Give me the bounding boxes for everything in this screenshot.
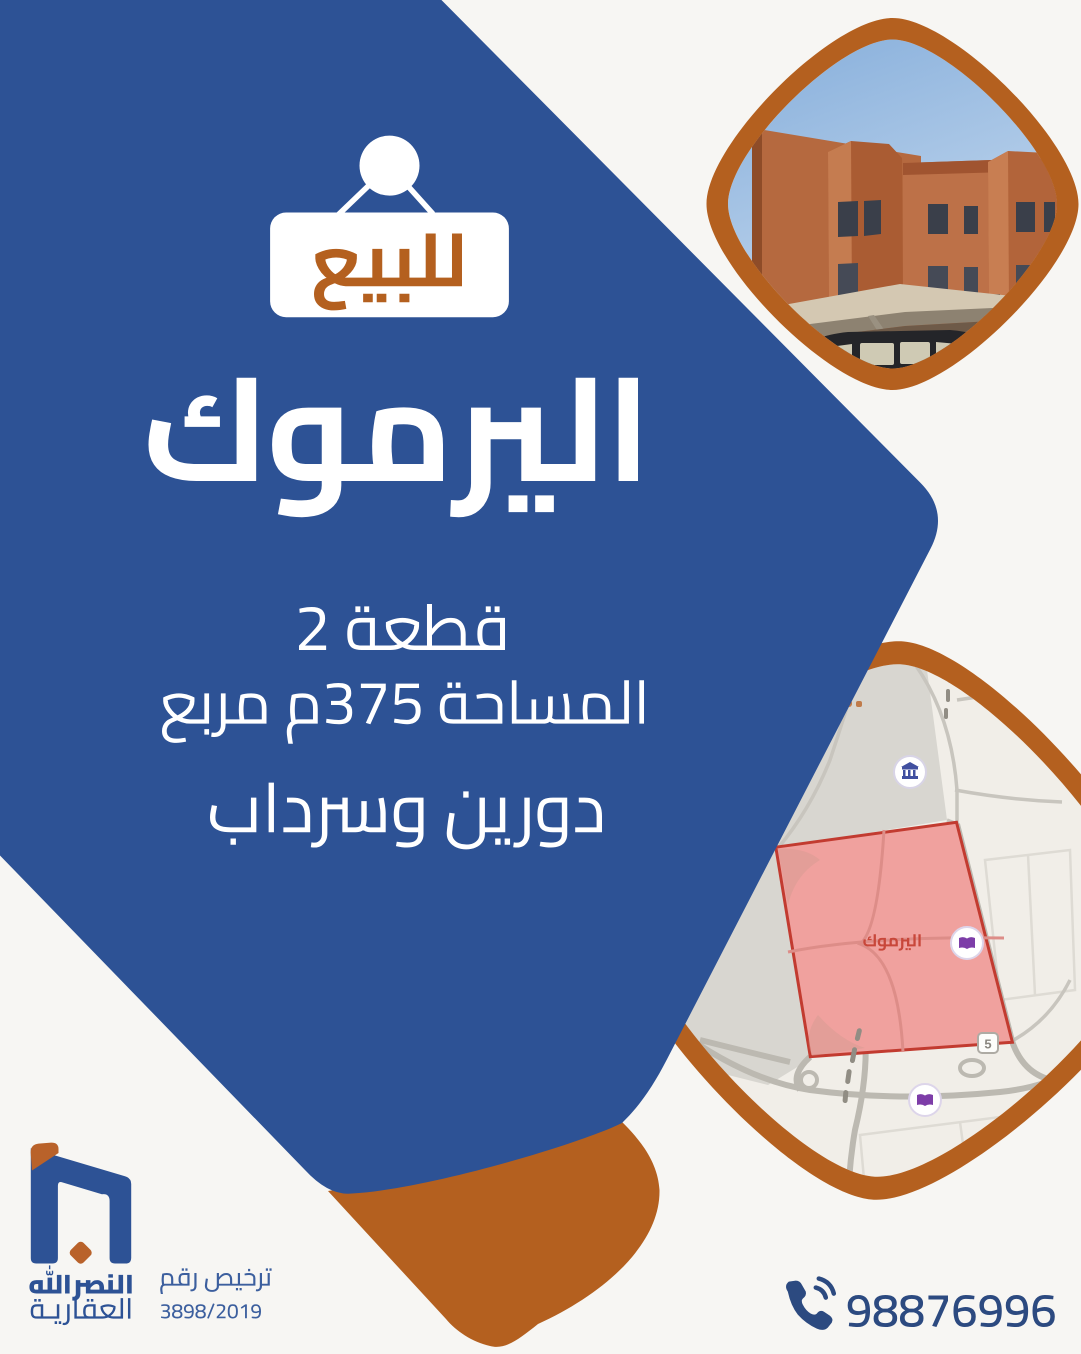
svg-text:5: 5 [984, 1037, 991, 1052]
